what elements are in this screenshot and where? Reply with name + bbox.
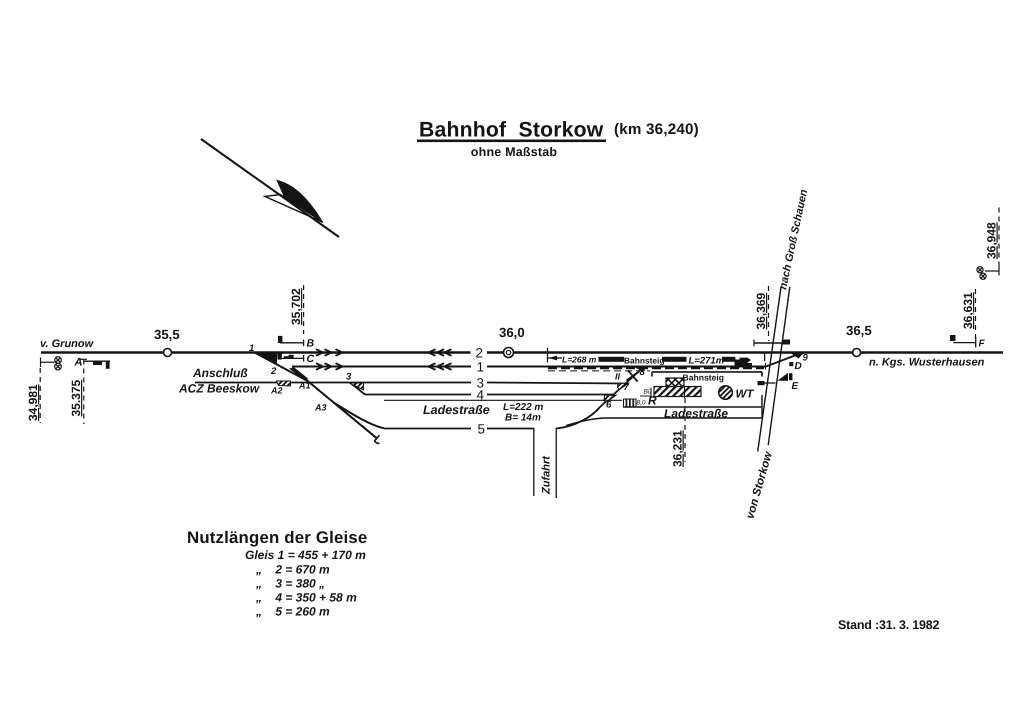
svg-text:Bahnhof Storkow: Bahnhof Storkow — [419, 119, 604, 142]
svg-text:35,5: 35,5 — [154, 327, 180, 342]
svg-text:Nutzlängen der Gleise: Nutzlängen der Gleise — [187, 528, 367, 547]
svg-text:Anschluß: Anschluß — [192, 366, 248, 380]
svg-text:„ 4 = 350 + 58 m: „ 4 = 350 + 58 m — [255, 591, 357, 605]
svg-text:2: 2 — [476, 346, 484, 361]
svg-text:36,948: 36,948 — [985, 222, 999, 259]
svg-text:36,0: 36,0 — [499, 325, 525, 340]
svg-text:II: II — [615, 372, 621, 382]
svg-text:Bahnsteig: Bahnsteig — [624, 355, 665, 365]
svg-text:B: B — [307, 338, 315, 350]
svg-text:2: 2 — [270, 366, 277, 377]
svg-text:A3: A3 — [314, 403, 327, 413]
svg-text:1: 1 — [477, 360, 485, 375]
svg-text:35,702: 35,702 — [289, 288, 303, 325]
svg-text:L=268 m: L=268 m — [562, 355, 597, 365]
svg-text:WT: WT — [736, 389, 755, 401]
svg-text:3: 3 — [346, 372, 352, 383]
svg-text:35.375: 35.375 — [69, 379, 83, 416]
svg-text:34,981: 34,981 — [26, 384, 40, 421]
svg-text:Bahnsteig: Bahnsteig — [683, 372, 725, 382]
svg-text:Gleis 1 = 455 + 170 m: Gleis 1 = 455 + 170 m — [245, 548, 366, 562]
svg-text:8,0: 8,0 — [637, 400, 646, 407]
svg-text:n. Kgs. Wusterhausen: n. Kgs. Wusterhausen — [869, 357, 985, 369]
svg-text:7: 7 — [624, 382, 630, 393]
svg-text:L=271m: L=271m — [689, 356, 725, 367]
svg-text:36,631: 36,631 — [961, 292, 975, 329]
svg-text:36,5: 36,5 — [846, 323, 872, 338]
svg-text:C: C — [307, 353, 315, 365]
svg-text:Zufahrt: Zufahrt — [541, 455, 553, 495]
svg-text:„ 2 = 670 m: „ 2 = 670 m — [255, 563, 330, 577]
svg-text:1: 1 — [249, 343, 254, 354]
svg-text:ohne Maßstab: ohne Maßstab — [471, 145, 558, 159]
svg-text:5: 5 — [478, 422, 486, 437]
svg-text:A1: A1 — [298, 381, 311, 391]
svg-text:v. Grunow: v. Grunow — [40, 338, 95, 350]
svg-text:A: A — [74, 357, 83, 369]
svg-text:(km 36,240): (km 36,240) — [614, 121, 699, 138]
svg-text:Ladestraße: Ladestraße — [423, 403, 490, 417]
svg-text:36,231: 36,231 — [671, 430, 685, 467]
svg-text:6: 6 — [606, 400, 612, 411]
svg-text:L=222 m: L=222 m — [503, 402, 543, 413]
svg-text:ACZ Beeskow: ACZ Beeskow — [178, 382, 260, 396]
svg-text:9: 9 — [803, 353, 809, 364]
svg-text:A2: A2 — [270, 386, 283, 396]
svg-text:B= 14m: B= 14m — [505, 413, 541, 424]
svg-text:F: F — [979, 339, 986, 350]
svg-text:„ 3 = 380 „: „ 3 = 380 „ — [255, 577, 325, 591]
svg-text:Ladestraße: Ladestraße — [664, 407, 728, 421]
svg-text:E: E — [792, 381, 799, 392]
svg-text:„ 5 = 260 m: „ 5 = 260 m — [255, 605, 330, 619]
svg-text:R: R — [648, 394, 657, 408]
svg-text:D: D — [795, 361, 802, 372]
svg-text:36,369: 36,369 — [754, 292, 768, 329]
svg-text:Stand :31. 3. 1982: Stand :31. 3. 1982 — [838, 618, 940, 632]
